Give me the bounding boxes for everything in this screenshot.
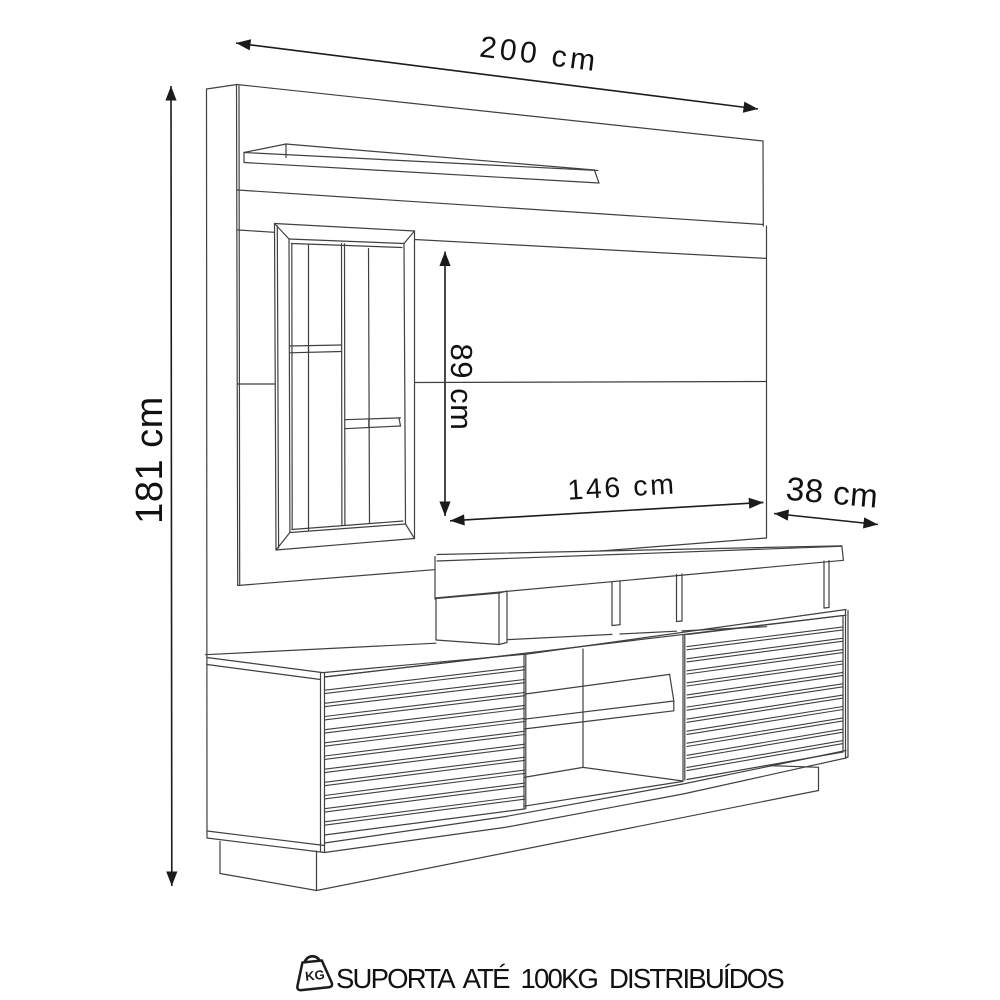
svg-text:KG: KG xyxy=(304,967,325,984)
svg-text:181 cm: 181 cm xyxy=(129,396,171,524)
svg-text:200 cm: 200 cm xyxy=(478,31,601,79)
svg-text:38 cm: 38 cm xyxy=(785,470,880,515)
svg-text:89 cm: 89 cm xyxy=(444,344,479,431)
svg-text:146 cm: 146 cm xyxy=(567,468,678,506)
svg-text:SUPORTA ATÉ 100KG DISTRIBUÍDOS: SUPORTA ATÉ 100KG DISTRIBUÍDOS xyxy=(336,963,784,994)
